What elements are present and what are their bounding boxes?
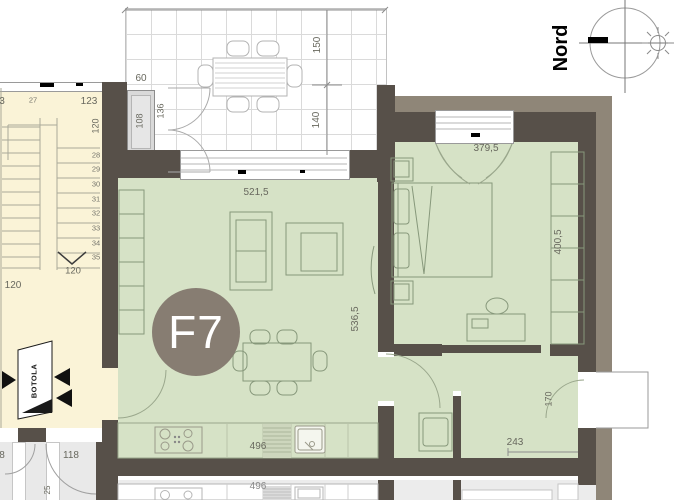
stair-step: 35 xyxy=(92,253,100,261)
stair-step: 28 xyxy=(92,151,100,159)
kitchen-fixtures xyxy=(118,423,378,458)
stair-step-25: 25 xyxy=(44,486,52,495)
compass-rose xyxy=(579,0,674,93)
dim-planter: 108 xyxy=(136,113,145,128)
dim-landing: 118 xyxy=(63,451,79,461)
dim-terrace-width: 60 xyxy=(135,74,146,84)
dim-flight-width: 120 xyxy=(65,266,81,276)
dim-kitchen-run: 496 xyxy=(250,442,267,452)
unit-badge-label: F7 xyxy=(168,305,224,359)
dim-stair-edge: 3 xyxy=(0,97,5,107)
floor-plan: Nord 60 108 136 150 140 521,5 536,5 496 … xyxy=(0,0,690,500)
window-mullions xyxy=(40,83,511,174)
stair-step: 34 xyxy=(92,239,100,247)
dim-terrace-depth-a: 150 xyxy=(313,37,323,54)
living-furniture xyxy=(119,190,375,395)
dim-entry-door: 170 xyxy=(545,391,554,406)
dim-flight-width-left: 120 xyxy=(5,281,22,291)
stair-direction-arrow xyxy=(58,252,86,264)
dim-terrace-depth-b: 140 xyxy=(312,112,322,129)
unit-badge: F7 xyxy=(152,288,240,376)
dim-neighbor-kitchen: 496 xyxy=(250,482,267,492)
stair-step: 33 xyxy=(92,224,100,232)
linework-layer xyxy=(0,0,690,500)
dim-bedroom-width: 379,5 xyxy=(473,144,498,154)
stair-step: 32 xyxy=(92,209,100,217)
dim-landing-edge: 8 xyxy=(0,451,5,461)
dimension-lines xyxy=(122,7,578,456)
neighbor-unit xyxy=(118,484,578,500)
dim-hall-width: 243 xyxy=(507,438,524,448)
dim-terrace-door: 136 xyxy=(157,103,166,118)
stair-step: 31 xyxy=(92,195,100,203)
compass-label: Nord xyxy=(551,25,571,72)
dim-bedroom-depth: 400,5 xyxy=(554,229,564,254)
sliding-door-panel xyxy=(437,345,541,353)
botola-label: BOTOLA xyxy=(30,364,38,399)
dim-living-width: 521,5 xyxy=(243,188,268,198)
stair-step: 30 xyxy=(92,180,100,188)
dim-stair-top-depth: 120 xyxy=(92,118,101,133)
north-marker xyxy=(588,37,608,43)
dim-stair-top-width: 123 xyxy=(81,97,98,107)
stair-step: 29 xyxy=(92,165,100,173)
stair-step-27: 27 xyxy=(29,96,37,104)
terrace-furniture xyxy=(168,41,302,172)
dim-living-depth: 536,5 xyxy=(351,306,361,331)
